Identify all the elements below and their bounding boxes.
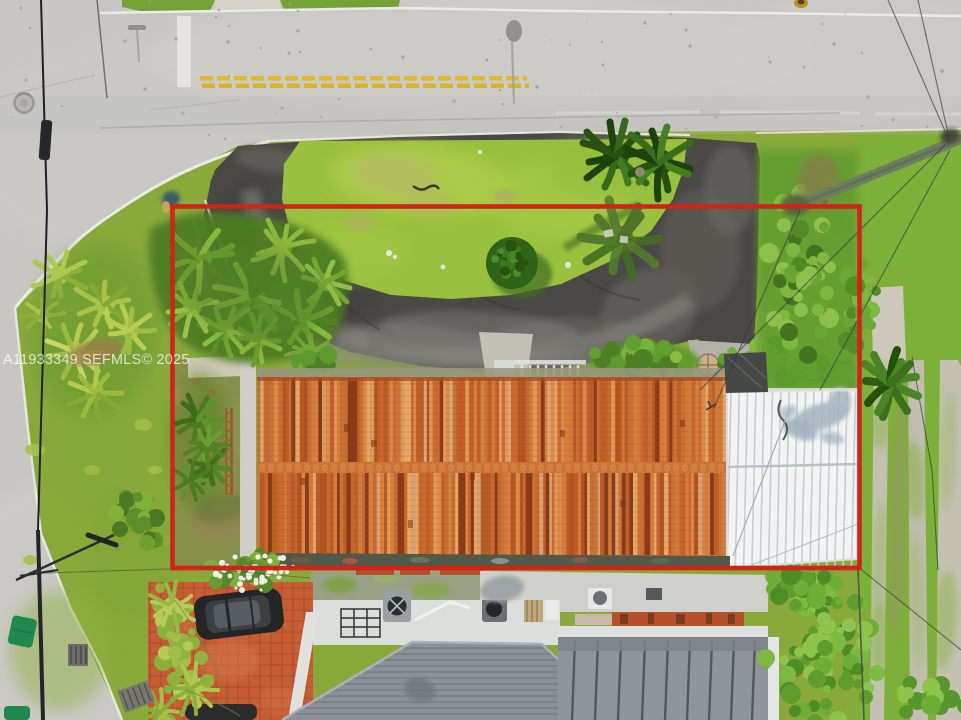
svg-text:A11933349 SEFMLS© 2025: A11933349 SEFMLS© 2025 bbox=[3, 352, 190, 368]
